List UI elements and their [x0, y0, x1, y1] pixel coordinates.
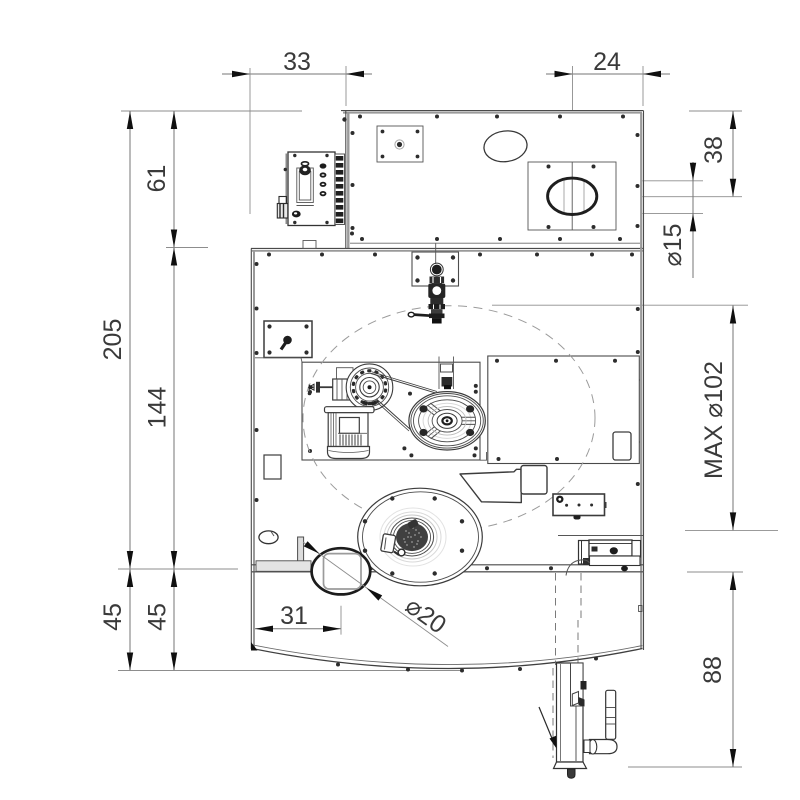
svg-text:31: 31 — [280, 602, 308, 630]
svg-text:⌀20: ⌀20 — [400, 592, 451, 640]
svg-text:33: 33 — [283, 48, 311, 76]
svg-text:38: 38 — [700, 136, 728, 164]
svg-text:144: 144 — [144, 387, 172, 429]
svg-text:45: 45 — [144, 603, 172, 631]
svg-text:MAX ⌀102: MAX ⌀102 — [700, 361, 728, 479]
svg-text:⌀15: ⌀15 — [659, 224, 687, 267]
svg-text:205: 205 — [99, 319, 127, 361]
svg-text:45: 45 — [99, 603, 127, 631]
svg-text:61: 61 — [143, 165, 171, 193]
svg-text:88: 88 — [699, 656, 727, 684]
svg-text:24: 24 — [593, 48, 621, 76]
